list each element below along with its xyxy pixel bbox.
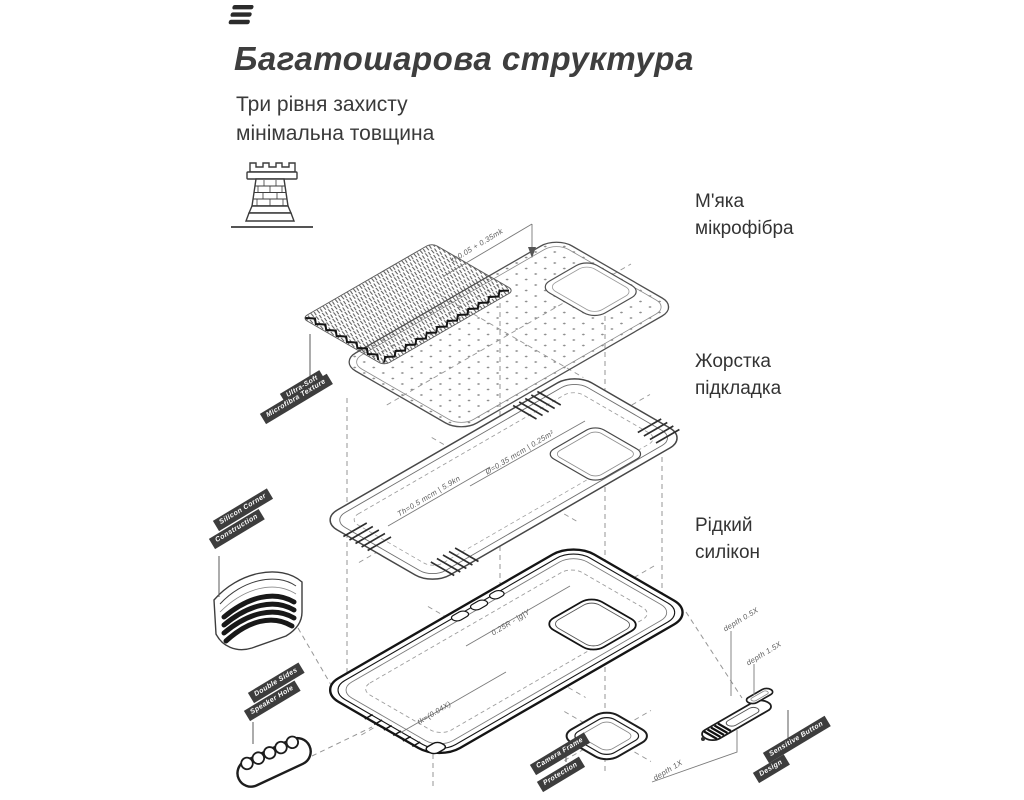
subtitle-line-1: Три рівня захисту <box>236 90 434 119</box>
exploded-diagram <box>0 0 1024 800</box>
label-line: Рідкий <box>695 512 760 539</box>
speaker-grommet-strip <box>232 731 315 791</box>
label-line: силікон <box>695 539 760 566</box>
label-line: мікрофібра <box>695 215 794 242</box>
label-liquid-silicone: Рідкий силікон <box>695 512 760 566</box>
page-subtitle: Три рівня захисту мінімальна товщина <box>236 90 434 148</box>
label-line: М'яка <box>695 188 794 215</box>
castle-tower-icon <box>231 163 313 227</box>
leader-dot <box>701 737 705 741</box>
label-line: Жорстка <box>695 348 781 375</box>
menu-icon <box>228 5 254 24</box>
page-title: Багатошарова структура <box>234 40 694 78</box>
corner-bumper-piece <box>214 572 302 650</box>
label-hard-lining: Жорстка підкладка <box>695 348 781 402</box>
product-infographic: Багатошарова структура Три рівня захисту… <box>0 0 1024 800</box>
subtitle-line-2: мінімальна товщина <box>236 119 434 148</box>
label-soft-microfiber: М'яка мікрофібра <box>695 188 794 242</box>
label-line: підкладка <box>695 375 781 402</box>
layer-silicone-case <box>283 521 733 781</box>
